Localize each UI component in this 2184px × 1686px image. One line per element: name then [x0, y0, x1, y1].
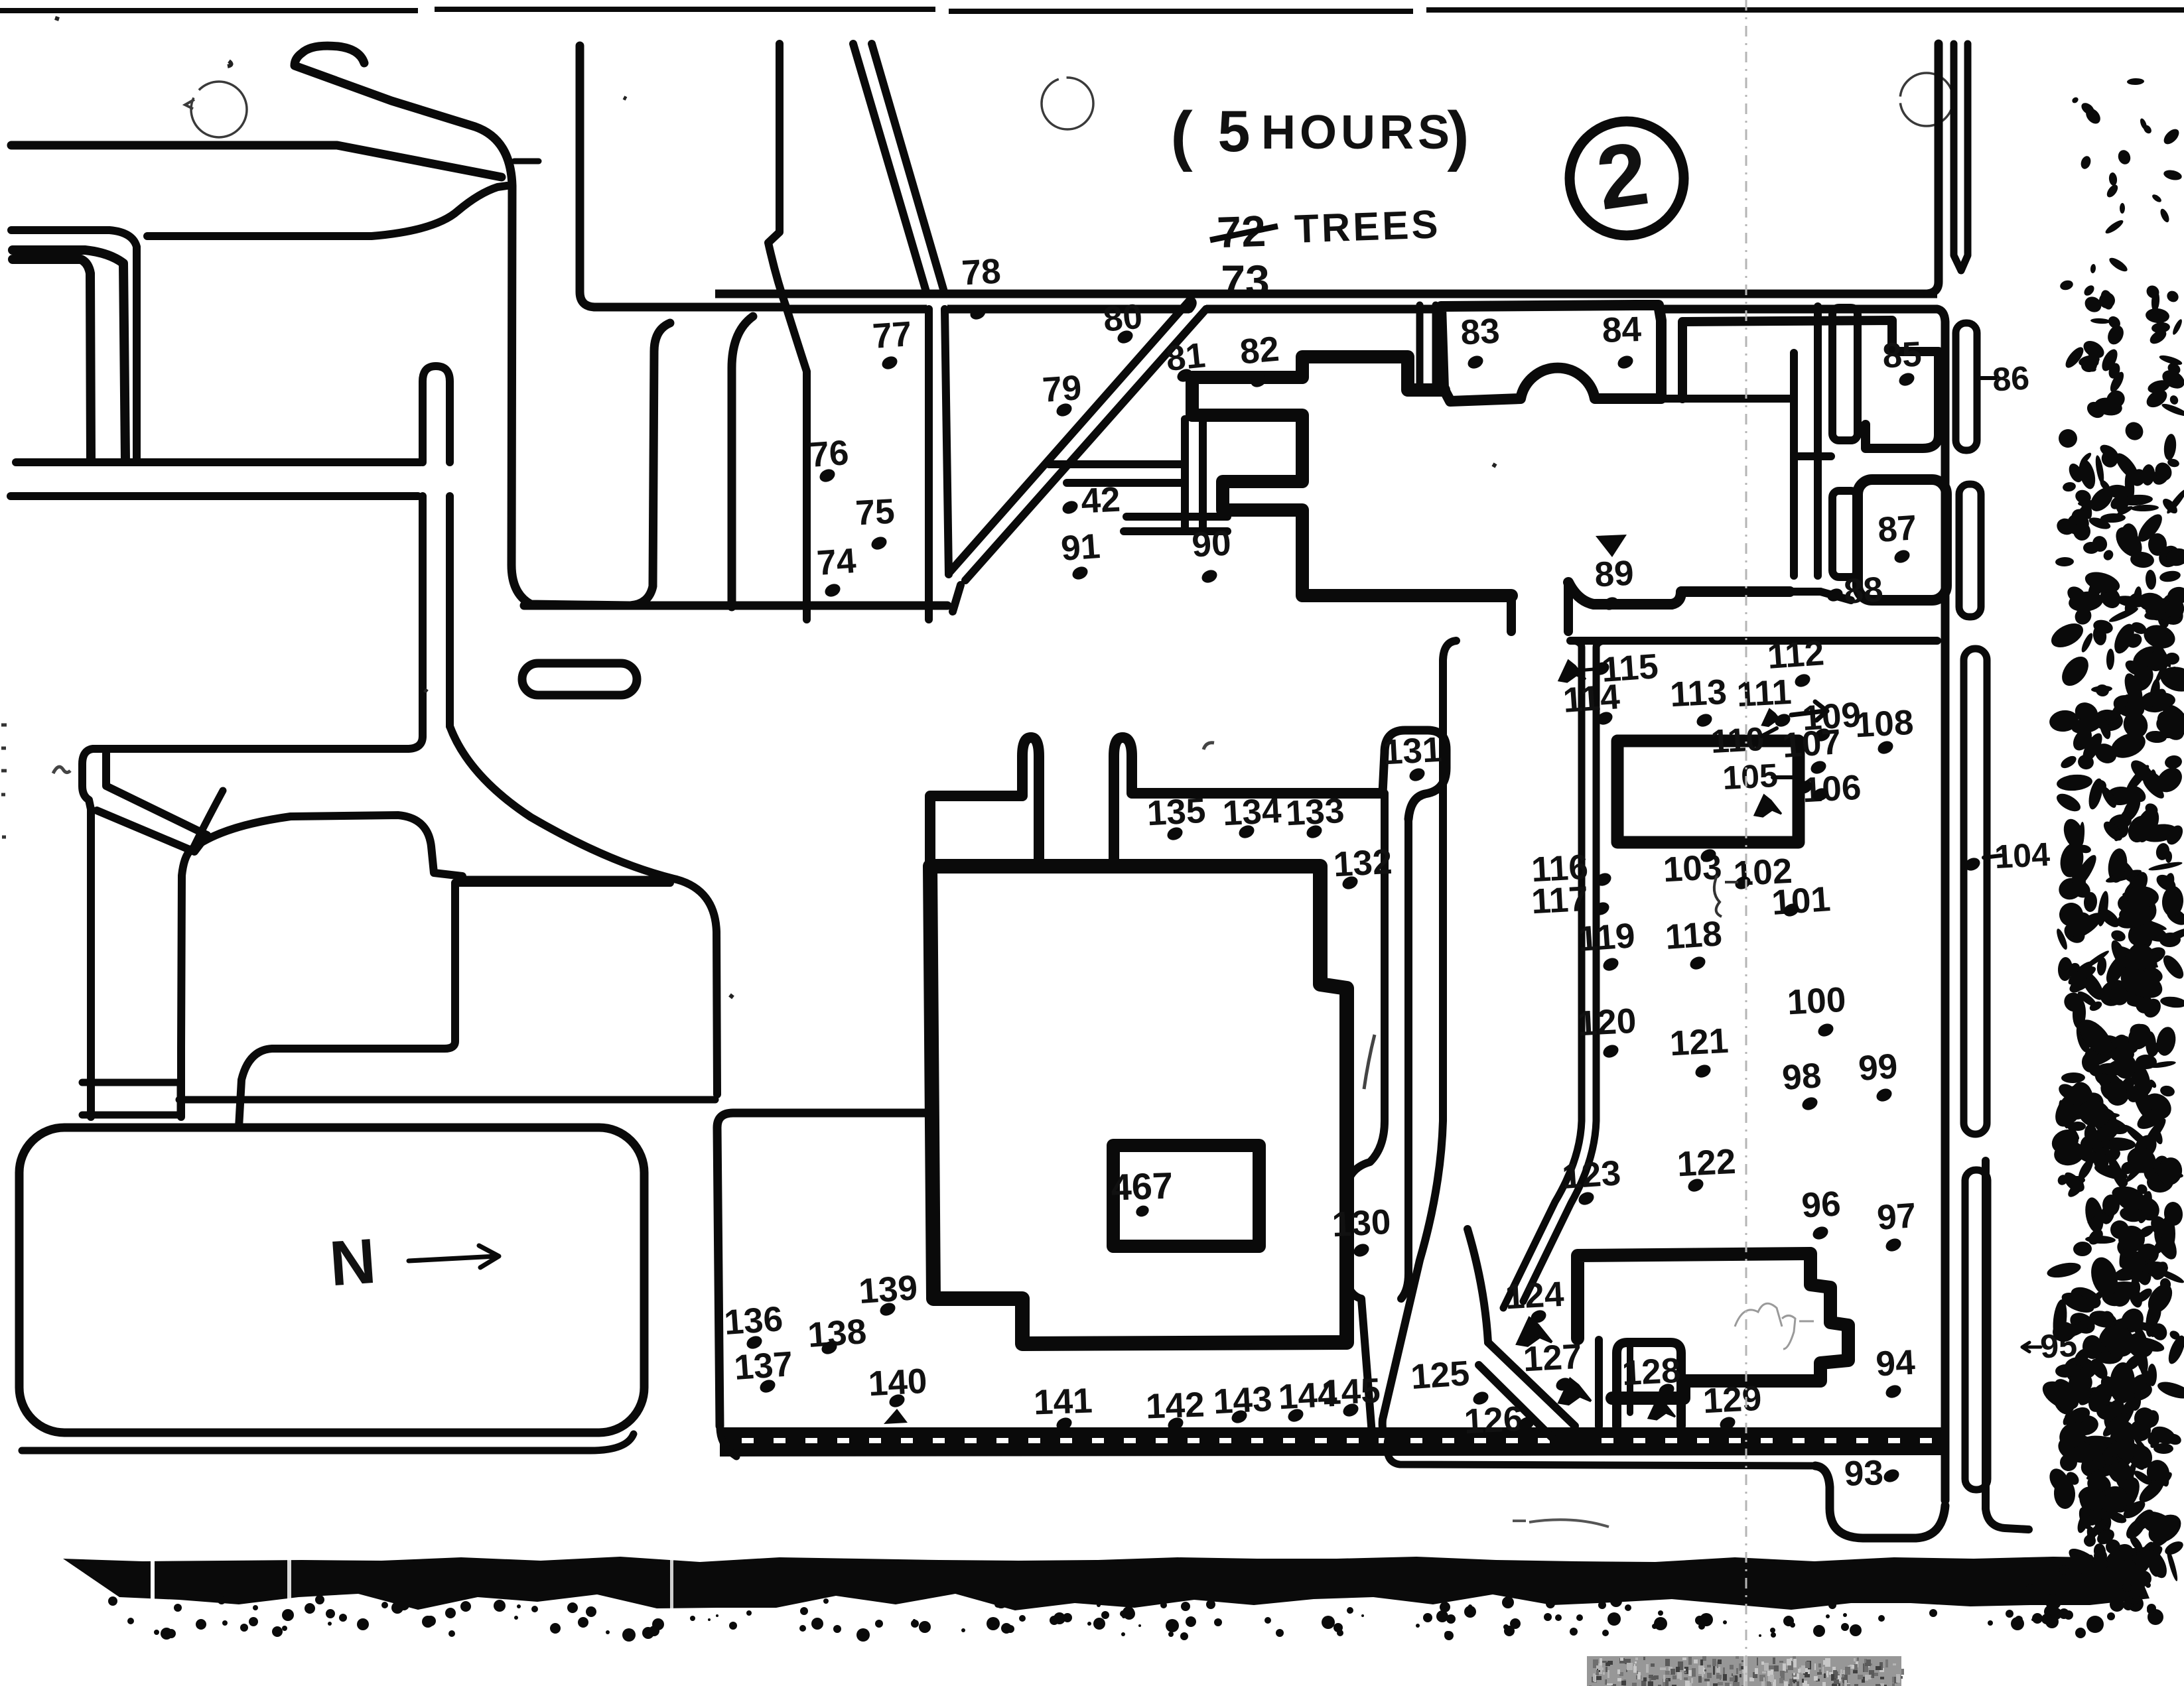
svg-text:137: 137: [733, 1344, 794, 1388]
svg-text:75: 75: [854, 492, 896, 533]
svg-text:82: 82: [1239, 330, 1281, 372]
svg-text:121: 121: [1669, 1021, 1729, 1064]
svg-text:113: 113: [1669, 673, 1728, 714]
svg-text:HOURS: HOURS: [1261, 106, 1454, 159]
svg-text:135: 135: [1146, 791, 1206, 834]
svg-text:42: 42: [1080, 480, 1121, 521]
svg-text:126: 126: [1463, 1399, 1523, 1442]
svg-text:125: 125: [1410, 1354, 1471, 1397]
svg-text:97: 97: [1876, 1196, 1917, 1238]
svg-text:TREES: TREES: [1294, 202, 1441, 251]
svg-text:83: 83: [1460, 312, 1501, 353]
svg-text:129: 129: [1702, 1379, 1762, 1421]
svg-text:131: 131: [1382, 730, 1442, 773]
svg-text:N: N: [327, 1226, 378, 1300]
svg-text:74: 74: [815, 541, 857, 583]
svg-text:467: 467: [1111, 1164, 1174, 1208]
svg-text:101: 101: [1771, 879, 1832, 923]
svg-text:89: 89: [1594, 554, 1635, 595]
svg-text:124: 124: [1504, 1275, 1565, 1317]
svg-text:138: 138: [807, 1312, 868, 1355]
svg-text:119: 119: [1577, 916, 1636, 959]
svg-text:78: 78: [961, 252, 1002, 293]
svg-text:96: 96: [1801, 1185, 1842, 1226]
svg-text:94: 94: [1875, 1342, 1916, 1384]
svg-text:): ): [1447, 98, 1469, 172]
svg-text:84: 84: [1602, 310, 1642, 350]
svg-text:90: 90: [1191, 524, 1232, 565]
svg-text:111: 111: [1736, 673, 1793, 714]
svg-text:120: 120: [1576, 1002, 1637, 1044]
svg-text:114: 114: [1562, 677, 1621, 720]
svg-text:141: 141: [1033, 1381, 1093, 1422]
svg-text:91: 91: [1059, 527, 1101, 568]
svg-text:132: 132: [1332, 842, 1393, 885]
svg-text:122: 122: [1676, 1142, 1736, 1185]
svg-text:98: 98: [1781, 1056, 1822, 1098]
svg-text:108: 108: [1854, 703, 1914, 746]
svg-text:88: 88: [1842, 570, 1884, 612]
svg-text:117: 117: [1531, 879, 1589, 921]
svg-text:136: 136: [723, 1299, 784, 1342]
svg-text:118: 118: [1664, 914, 1723, 957]
svg-text:5: 5: [1218, 98, 1251, 164]
svg-text:76: 76: [808, 433, 850, 475]
svg-text:105: 105: [1722, 757, 1779, 797]
svg-text:123: 123: [1561, 1153, 1622, 1197]
svg-text:130: 130: [1331, 1202, 1391, 1245]
svg-text:79: 79: [1041, 368, 1083, 410]
svg-text:99: 99: [1857, 1047, 1899, 1088]
svg-text:100: 100: [1786, 980, 1846, 1023]
svg-text:87: 87: [1876, 508, 1918, 550]
svg-text:110: 110: [1710, 720, 1765, 760]
svg-text:85: 85: [1881, 335, 1923, 376]
svg-text:93: 93: [1844, 1453, 1884, 1494]
svg-text:77: 77: [871, 314, 913, 356]
svg-text:(: (: [1170, 98, 1193, 172]
svg-text:107: 107: [1781, 722, 1842, 765]
svg-text:112: 112: [1766, 633, 1825, 677]
